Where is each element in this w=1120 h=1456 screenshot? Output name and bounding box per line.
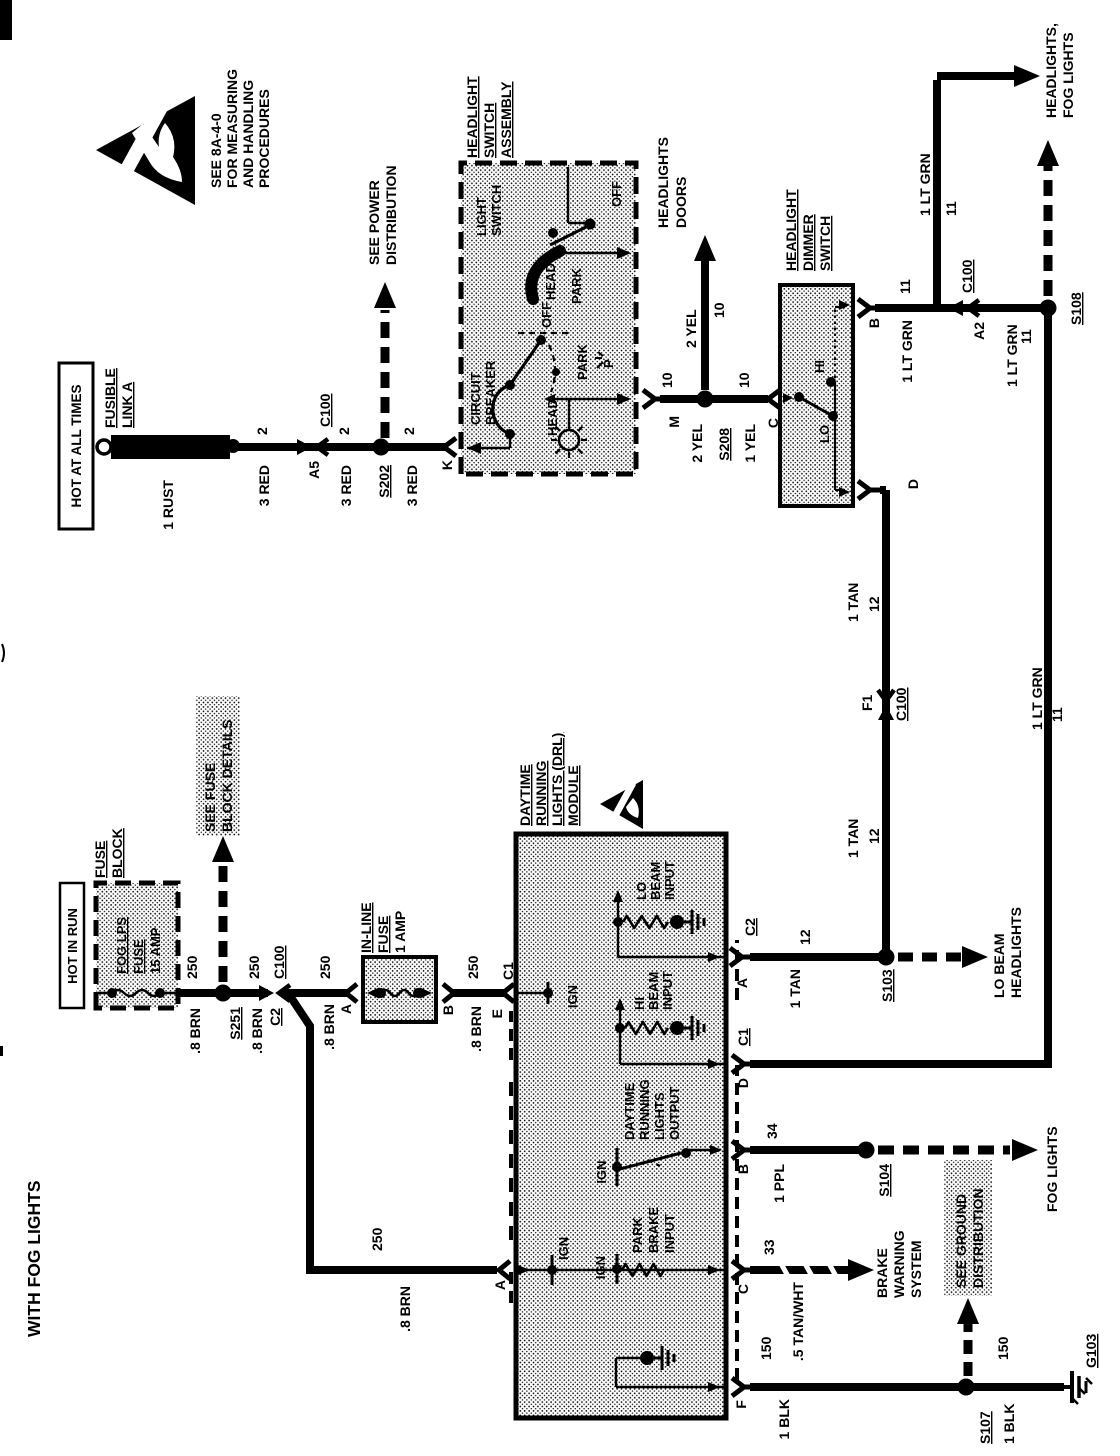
svg-text:1 LT GRN: 1 LT GRN — [917, 153, 933, 216]
svg-text:A: A — [492, 1280, 508, 1290]
svg-text:ASSEMBLY: ASSEMBLY — [498, 81, 514, 158]
svg-text:.8 BRN: .8 BRN — [468, 1006, 484, 1052]
svg-text:HEADLIGHT: HEADLIGHT — [783, 189, 799, 271]
svg-text:HEADLIGHT: HEADLIGHT — [464, 76, 480, 158]
svg-text:WITH FOG LIGHTS: WITH FOG LIGHTS — [24, 1180, 44, 1337]
svg-text:G103: G103 — [1083, 1334, 1099, 1368]
svg-text:250: 250 — [317, 955, 333, 979]
svg-text:11: 11 — [943, 201, 959, 216]
svg-text:1 TAN: 1 TAN — [845, 583, 861, 622]
svg-text:HEAD: HEAD — [545, 399, 560, 436]
svg-text:A2: A2 — [971, 322, 987, 340]
svg-text:PARK: PARK — [569, 268, 584, 304]
svg-text:.8 BRN: .8 BRN — [187, 1008, 203, 1054]
svg-text:LINK A: LINK A — [119, 382, 135, 428]
svg-text:1 LT GRN: 1 LT GRN — [1029, 667, 1045, 730]
svg-text:S251: S251 — [227, 1007, 243, 1040]
svg-text:SWITCH: SWITCH — [489, 185, 504, 236]
svg-text:HEADLIGHTS: HEADLIGHTS — [1008, 907, 1024, 998]
svg-text:1 PPL: 1 PPL — [771, 1164, 787, 1203]
svg-text:HI: HI — [812, 360, 827, 373]
svg-text:.8 BRN: .8 BRN — [321, 1004, 337, 1050]
svg-text:DIMMER: DIMMER — [800, 214, 816, 271]
svg-text:2 YEL: 2 YEL — [683, 309, 699, 348]
svg-text:IGN: IGN — [565, 985, 580, 1008]
svg-text:SYSTEM: SYSTEM — [908, 1240, 924, 1298]
svg-text:BEAM: BEAM — [648, 862, 663, 900]
svg-text:FOG LIGHTS: FOG LIGHTS — [1044, 1126, 1060, 1212]
svg-text:150: 150 — [995, 1336, 1011, 1360]
svg-text:S108: S108 — [1068, 292, 1084, 325]
svg-text:C2: C2 — [267, 1008, 283, 1026]
svg-text:A5: A5 — [306, 461, 322, 479]
svg-text:S104: S104 — [876, 1164, 892, 1197]
svg-text:C100: C100 — [317, 393, 333, 427]
svg-text:3 RED: 3 RED — [338, 465, 354, 506]
svg-text:LIGHT: LIGHT — [474, 197, 489, 236]
svg-text:250: 250 — [465, 955, 481, 979]
svg-text:2: 2 — [254, 427, 270, 435]
svg-text:FUSE: FUSE — [92, 841, 108, 878]
svg-text:DAYTIME: DAYTIME — [622, 1082, 637, 1140]
svg-text:SEE 8A-4-0: SEE 8A-4-0 — [208, 113, 224, 188]
svg-text:S103: S103 — [879, 969, 895, 1002]
svg-text:S208: S208 — [716, 428, 732, 461]
svg-text:A: A — [338, 1004, 354, 1014]
svg-text:RUNNING: RUNNING — [533, 761, 549, 826]
svg-text:C100: C100 — [959, 259, 975, 293]
svg-text:LO: LO — [817, 425, 832, 443]
svg-text:DISTRIBUTION: DISTRIBUTION — [383, 165, 399, 265]
svg-text:IGN: IGN — [556, 1237, 571, 1260]
svg-text:CIRCUIT: CIRCUIT — [468, 372, 483, 425]
svg-text:OFF: OFF — [539, 302, 554, 328]
svg-text:INPUT: INPUT — [662, 1214, 677, 1253]
svg-text:DAYTIME: DAYTIME — [517, 764, 533, 826]
svg-text:IGN: IGN — [594, 1160, 609, 1183]
svg-text:FUSIBLE: FUSIBLE — [102, 368, 118, 428]
svg-text:1 AMP: 1 AMP — [392, 911, 408, 953]
svg-text:OUTPUT: OUTPUT — [667, 1087, 682, 1141]
svg-text:P: P — [601, 359, 616, 368]
svg-text:HOT AT ALL TIMES: HOT AT ALL TIMES — [69, 385, 84, 508]
svg-text:12: 12 — [797, 929, 813, 945]
svg-text:BLOCK: BLOCK — [109, 828, 125, 878]
svg-text:B: B — [440, 1005, 456, 1015]
svg-text:S107: S107 — [977, 1411, 993, 1444]
svg-text:10: 10 — [736, 372, 752, 388]
svg-text:K: K — [439, 460, 455, 470]
svg-text:PARK: PARK — [575, 344, 590, 380]
svg-text:FOG LPS: FOG LPS — [114, 917, 129, 974]
svg-text:BRAKE: BRAKE — [646, 1206, 661, 1253]
svg-text:INPUT: INPUT — [662, 861, 677, 900]
svg-text:SWITCH: SWITCH — [817, 216, 833, 271]
svg-text:S202: S202 — [376, 465, 392, 498]
svg-text:33: 33 — [761, 1239, 777, 1255]
svg-text:BRAKE: BRAKE — [874, 1248, 890, 1298]
svg-text:C100: C100 — [271, 945, 287, 979]
svg-text:2: 2 — [336, 427, 352, 435]
svg-text:B: B — [866, 318, 882, 328]
svg-text:BREAKER: BREAKER — [483, 360, 498, 425]
svg-text:2 YEL: 2 YEL — [689, 424, 705, 463]
svg-text:1 LT GRN: 1 LT GRN — [899, 320, 915, 383]
svg-text:BEAM: BEAM — [646, 972, 661, 1010]
svg-text:FUSE: FUSE — [131, 939, 146, 974]
svg-text:F: F — [733, 1400, 749, 1409]
svg-text:SEE POWER: SEE POWER — [366, 180, 382, 265]
svg-text:150: 150 — [758, 1336, 774, 1360]
svg-text:LIGHTS (DRL): LIGHTS (DRL) — [549, 733, 565, 826]
svg-text:SEE FUSE: SEE FUSE — [202, 763, 218, 832]
svg-text:C2: C2 — [742, 918, 758, 936]
svg-text:LO: LO — [634, 882, 649, 900]
svg-text:M: M — [666, 416, 682, 428]
svg-text:D: D — [905, 479, 921, 489]
svg-text:HEADLIGHTS,: HEADLIGHTS, — [1043, 23, 1059, 118]
svg-text:1 TAN: 1 TAN — [787, 969, 803, 1008]
svg-text:250: 250 — [369, 1227, 385, 1251]
svg-text:.8 BRN: .8 BRN — [397, 1286, 413, 1332]
svg-text:34: 34 — [764, 1123, 780, 1139]
svg-text:3 RED: 3 RED — [404, 465, 420, 506]
svg-text:DOORS: DOORS — [673, 177, 689, 228]
svg-text:BLOCK DETAILS: BLOCK DETAILS — [219, 719, 235, 832]
svg-text:PROCEDURES: PROCEDURES — [256, 89, 272, 188]
svg-text:15 AMP: 15 AMP — [148, 927, 163, 974]
svg-text:.5 TAN/WHT: .5 TAN/WHT — [790, 1282, 806, 1362]
svg-text:IGN: IGN — [593, 1256, 608, 1279]
svg-text:F1: F1 — [859, 694, 875, 711]
svg-text:SEE GROUND: SEE GROUND — [953, 1194, 969, 1288]
svg-text:11: 11 — [1049, 707, 1065, 722]
svg-text:HOT IN RUN: HOT IN RUN — [65, 908, 80, 984]
svg-text:1 TAN: 1 TAN — [845, 819, 861, 858]
svg-text:1 RUST: 1 RUST — [160, 480, 176, 530]
svg-text:12: 12 — [866, 828, 882, 844]
svg-text:HI: HI — [632, 997, 647, 1010]
svg-text:LO BEAM: LO BEAM — [991, 933, 1007, 998]
svg-text:FOG LIGHTS: FOG LIGHTS — [1060, 32, 1076, 118]
svg-text:12: 12 — [866, 596, 882, 612]
svg-text:2: 2 — [401, 427, 417, 435]
svg-text:MODULE: MODULE — [565, 765, 581, 826]
svg-text:FOR MEASURING: FOR MEASURING — [224, 69, 240, 188]
svg-text:FUSE: FUSE — [375, 916, 391, 953]
svg-text:1 BLK: 1 BLK — [776, 1399, 792, 1439]
svg-text:E: E — [489, 1009, 505, 1018]
svg-text:WARNING: WARNING — [891, 1230, 907, 1298]
svg-text:INPUT: INPUT — [660, 971, 675, 1010]
svg-text:RUNNING: RUNNING — [637, 1079, 652, 1140]
svg-text:DISTRIBUTION: DISTRIBUTION — [970, 1188, 986, 1288]
svg-text:OFF: OFF — [609, 181, 624, 207]
svg-text:11: 11 — [897, 279, 913, 294]
svg-text:10: 10 — [659, 372, 675, 388]
svg-text:1 YEL: 1 YEL — [742, 424, 758, 463]
svg-text:SWITCH: SWITCH — [481, 103, 497, 158]
svg-text:11: 11 — [1018, 329, 1034, 344]
svg-text:PARK: PARK — [630, 1217, 645, 1253]
svg-text:HEADLIGHTS: HEADLIGHTS — [655, 137, 671, 228]
svg-text:10: 10 — [711, 302, 727, 318]
svg-text:LIGHTS: LIGHTS — [652, 1092, 667, 1140]
svg-text:250: 250 — [246, 955, 262, 979]
svg-text:C1: C1 — [735, 1028, 751, 1046]
svg-text:.8 BRN: .8 BRN — [249, 1008, 265, 1054]
svg-text:IN-LINE: IN-LINE — [358, 902, 374, 953]
svg-text:AND HANDLING: AND HANDLING — [240, 80, 256, 188]
svg-text:1 BLK: 1 BLK — [1001, 1404, 1017, 1444]
svg-text:C100: C100 — [893, 687, 909, 721]
svg-text:250: 250 — [184, 955, 200, 979]
svg-text:3 RED: 3 RED — [256, 465, 272, 506]
